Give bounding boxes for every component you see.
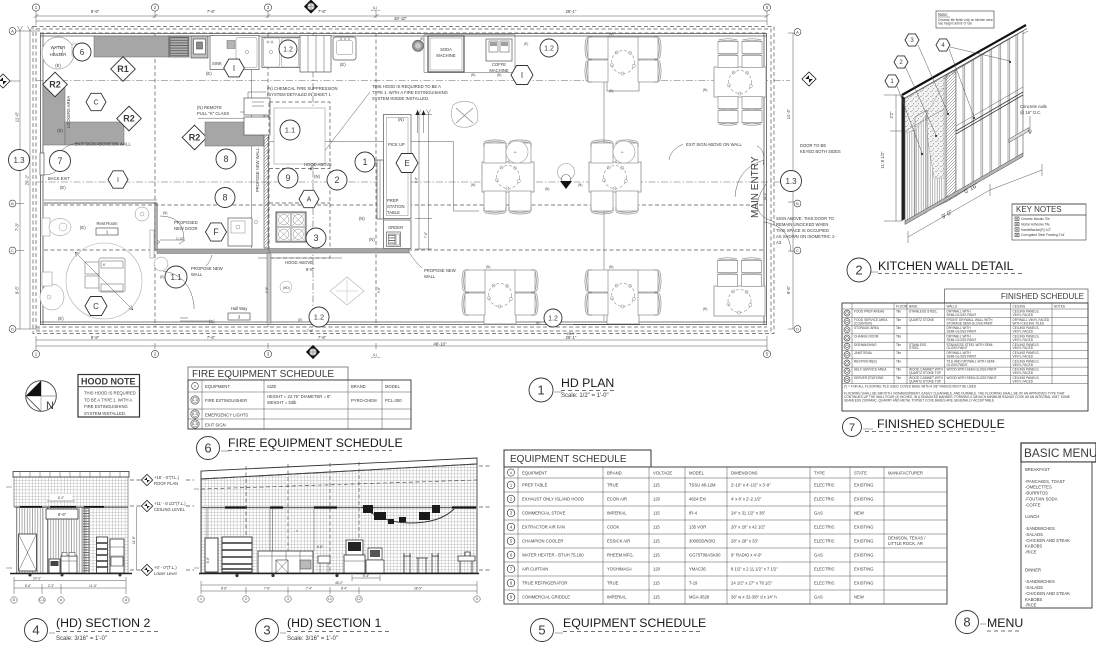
svg-text:WALLS: WALLS [947, 305, 958, 309]
svg-text:Tile: Tile [896, 310, 901, 314]
svg-text:+16' - 0"(T.L.): +16' - 0"(T.L.) [154, 475, 180, 480]
svg-text:3000DD/N3/O: 3000DD/N3/O [689, 539, 716, 544]
svg-text:IMPERIAL: IMPERIAL [607, 511, 627, 516]
svg-text:28'-1": 28'-1" [567, 332, 575, 336]
svg-text:RHEEM MFG.: RHEEM MFG. [607, 553, 634, 558]
svg-text:D: D [796, 326, 799, 331]
svg-text:JANITORIAL: JANITORIAL [854, 351, 873, 355]
svg-text:GAS: GAS [814, 595, 823, 600]
svg-text:2'-3": 2'-3" [48, 584, 54, 588]
svg-text:AS SHOWN ON ISOMETRIC 1-: AS SHOWN ON ISOMETRIC 1- [776, 234, 836, 239]
svg-text:Scale: 1/2" = 1'-0": Scale: 1/2" = 1'-0" [561, 393, 609, 399]
svg-text:EXHAUST ONLY ISLAND HOOD: EXHAUST ONLY ISLAND HOOD [522, 497, 584, 502]
svg-text:24" x 31 1/2" x 36": 24" x 31 1/2" x 36" [731, 511, 766, 516]
svg-text:4: 4 [32, 623, 39, 638]
svg-text:CEILING: CEILING [1013, 305, 1026, 309]
svg-text:120: 120 [653, 497, 661, 502]
svg-text:PROPOSED: PROPOSED [174, 220, 198, 225]
svg-text:ELECTRIC: ELECTRIC [814, 483, 835, 488]
svg-text:(N): (N) [703, 88, 707, 92]
svg-text:26'-2": 26'-2" [25, 174, 30, 185]
svg-text:(HD) SECTION 2: (HD) SECTION 2 [56, 616, 150, 630]
svg-text:20" x 20" x 42 1/2": 20" x 20" x 42 1/2" [731, 525, 766, 530]
svg-text:SEMI-GLOSS PAINT: SEMI-GLOSS PAINT [947, 338, 977, 342]
svg-text:NEW DOOR: NEW DOOR [174, 226, 198, 231]
svg-text:A: A [307, 197, 312, 204]
svg-text:GG75T06ASK00: GG75T06ASK00 [689, 553, 721, 558]
svg-text:WATER HEATER - BTUH 75,100: WATER HEATER - BTUH 75,100 [522, 553, 584, 558]
svg-text:PCL-300: PCL-300 [385, 398, 402, 403]
svg-text:WITH CEILING TILES: WITH CEILING TILES [1013, 321, 1044, 325]
svg-text:7'-6": 7'-6" [318, 335, 327, 340]
svg-text:SODA: SODA [440, 47, 452, 52]
svg-text:9'-6": 9'-6" [415, 177, 419, 183]
svg-text:MGA-3628: MGA-3628 [689, 595, 710, 600]
svg-text:PREP TABLE: PREP TABLE [522, 483, 548, 488]
svg-text:8 1/2" x 2 11 1/2" x 7 1/2": 8 1/2" x 2 11 1/2" x 7 1/2" [731, 567, 778, 572]
svg-text:4' x 8' x 2'-2 1/2": 4' x 8' x 2'-2 1/2" [731, 497, 762, 502]
svg-text:TSSU 48-12M: TSSU 48-12M [689, 483, 716, 488]
svg-text:6': 6' [103, 263, 106, 267]
svg-text:BREAKFAST: BREAKFAST [1025, 467, 1050, 472]
svg-text:L1: L1 [328, 597, 332, 601]
svg-text:9'-6": 9'-6" [786, 285, 791, 294]
svg-text:SIZE: SIZE [267, 384, 277, 389]
svg-text:120: 120 [653, 567, 661, 572]
svg-text:EQUIPMENT SCHEDULE: EQUIPMENT SCHEDULE [510, 454, 627, 465]
svg-text:Ceramic Mosaic Tile: Ceramic Mosaic Tile [1021, 217, 1050, 221]
svg-text:FIRE EQUIPMENT SCHEDULE: FIRE EQUIPMENT SCHEDULE [192, 369, 334, 380]
svg-text:(N): (N) [609, 89, 613, 93]
svg-text:1: 1 [200, 597, 202, 601]
svg-text:R2: R2 [49, 80, 61, 90]
svg-text:SERVER STATIONS: SERVER STATIONS [854, 376, 883, 380]
svg-text:VINYL FACED: VINYL FACED [1013, 338, 1034, 342]
svg-text:-SANDWICHES: -SANDWICHES [1025, 526, 1055, 531]
svg-text:-RICE: -RICE [1025, 603, 1037, 608]
svg-text:5: 5 [538, 623, 545, 638]
svg-text:SIGN ABOVE: THIS DOOR TO: SIGN ABOVE: THIS DOOR TO [776, 216, 835, 221]
svg-text:(N): (N) [703, 307, 707, 311]
svg-text:SEMI-GLOSS PAINT: SEMI-GLOSS PAINT [947, 355, 977, 359]
svg-text:(N): (N) [369, 237, 375, 242]
svg-text:SELF-SERVICE AREA: SELF-SERVICE AREA [854, 368, 887, 372]
svg-text:2'-10": 2'-10" [176, 237, 184, 241]
svg-text:(E): (E) [206, 71, 212, 76]
svg-text:SEMI-GLOSS PAINT: SEMI-GLOSS PAINT [947, 330, 977, 334]
svg-text:KABOBS: KABOBS [1025, 544, 1042, 549]
svg-text:DENISON, TEXAS /: DENISON, TEXAS / [888, 535, 926, 540]
svg-text:A3: A3 [776, 240, 782, 245]
svg-text:7: 7 [57, 156, 62, 166]
svg-text:9" RADIO x 4'-9": 9" RADIO x 4'-9" [731, 553, 763, 558]
svg-text:1.3: 1.3 [193, 422, 198, 426]
svg-text:8'-8": 8'-8" [91, 335, 100, 340]
svg-text:PREP: PREP [387, 198, 399, 203]
svg-text:COMMERCIAL GRIDDLE: COMMERCIAL GRIDDLE [522, 595, 570, 600]
svg-text:MODEL: MODEL [689, 471, 705, 476]
svg-text:PULL "K" CLASS: PULL "K" CLASS [197, 111, 229, 116]
svg-text:VINYL FACED: VINYL FACED [1013, 355, 1034, 359]
svg-text:Hall Way: Hall Way [231, 306, 249, 311]
svg-text:BASIC MENU: BASIC MENU [1024, 446, 1096, 460]
svg-text:1.2: 1.2 [314, 313, 324, 322]
svg-text:TABLE: TABLE [387, 210, 400, 215]
svg-text:SYSTEM INSIDE INSTALLED.: SYSTEM INSIDE INSTALLED. [372, 96, 429, 101]
svg-text:HOOD ABOVE: HOOD ABOVE [304, 162, 332, 167]
svg-text:7'-6": 7'-6" [424, 232, 428, 238]
svg-text:(N): (N) [545, 187, 549, 191]
svg-text:11'-4": 11'-4" [786, 108, 791, 119]
svg-text:7'-6": 7'-6" [207, 335, 216, 340]
svg-text:KEYED BOTH SIDES: KEYED BOTH SIDES [800, 149, 841, 154]
svg-text:(N): (N) [471, 183, 475, 187]
svg-text:LOCKERS AREA: LOCKERS AREA [66, 96, 71, 129]
svg-text:Scale: 3/16" = 1'-0": Scale: 3/16" = 1'-0" [56, 636, 107, 642]
svg-text:8'-8": 8'-8" [317, 545, 323, 549]
svg-text:STORAGE AREA: STORAGE AREA [854, 326, 880, 330]
svg-text:B: B [11, 201, 14, 206]
svg-text:(N): (N) [497, 73, 501, 77]
svg-text:6'-6": 6'-6" [206, 557, 210, 563]
svg-text:FINISHED SCHEDULE: FINISHED SCHEDULE [1001, 292, 1084, 301]
svg-text:VINYL FACED: VINYL FACED [1013, 313, 1034, 317]
svg-text:I: I [233, 64, 235, 73]
svg-text:T-19: T-19 [689, 581, 698, 586]
svg-text:-CHICKEN AND STEAK: -CHICKEN AND STEAK [1025, 538, 1070, 543]
svg-text:Tile: Tile [896, 368, 901, 372]
svg-text:7'-3": 7'-3" [15, 222, 20, 231]
svg-text:11' 8 1/2": 11' 8 1/2" [880, 151, 885, 169]
svg-text:ECON AIR: ECON AIR [607, 497, 627, 502]
svg-text:RESTROOM(S): RESTROOM(S) [854, 359, 877, 363]
svg-text:1.2: 1.2 [193, 412, 198, 416]
svg-text:KABOBS: KABOBS [1025, 597, 1042, 602]
svg-text:WOOD WITH SEMI-GLOSS PAINT: WOOD WITH SEMI-GLOSS PAINT [947, 368, 997, 372]
svg-text:(N): (N) [609, 32, 613, 36]
svg-text:8'-8": 8'-8" [91, 9, 100, 14]
svg-text:Concrete nails: Concrete nails [1020, 104, 1047, 109]
svg-text:COOK: COOK [607, 525, 620, 530]
svg-text:(N): (N) [314, 174, 320, 179]
svg-text:NEW: NEW [854, 511, 864, 516]
svg-text:11'-6": 11'-6" [89, 584, 97, 588]
svg-text:ELECTRIC: ELECTRIC [814, 567, 835, 572]
svg-text:EMERGENCY LIGHTS: EMERGENCY LIGHTS [205, 413, 248, 418]
svg-text:BASE: BASE [909, 305, 918, 309]
svg-text:Lower Level: Lower Level [154, 571, 177, 576]
svg-text:(E): (E) [298, 318, 302, 322]
svg-text:3: 3 [263, 623, 270, 638]
svg-text:DINNER: DINNER [1025, 567, 1041, 572]
svg-text:11'-6": 11'-6" [15, 111, 20, 122]
svg-text:SYSTEM INSTALLED.: SYSTEM INSTALLED. [84, 411, 126, 416]
svg-text:7'-6": 7'-6" [318, 9, 327, 14]
svg-text:Tile: Tile [896, 326, 901, 330]
svg-text:(SYSTEM DETAILED IN SHEET 1: (SYSTEM DETAILED IN SHEET 1 [267, 92, 332, 97]
svg-text:YMAC36: YMAC36 [689, 567, 706, 572]
svg-text:FIRE EQUIPMENT SCHEDULE: FIRE EQUIPMENT SCHEDULE [228, 436, 403, 450]
svg-text:FIRE EXTINGUISHER: FIRE EXTINGUISHER [205, 398, 247, 403]
svg-text:24 1/2" x 27" x 78 1/2": 24 1/2" x 27" x 78 1/2" [731, 581, 773, 586]
svg-text:EXTRACTOR AIR FAN: EXTRACTOR AIR FAN [522, 525, 565, 530]
svg-text:9'-5": 9'-5" [15, 285, 20, 294]
svg-text:-SALADS: -SALADS [1025, 585, 1043, 590]
svg-text:(N): (N) [471, 73, 475, 77]
svg-text:115: 115 [653, 553, 660, 558]
svg-text:8: 8 [963, 615, 970, 630]
svg-text:PROPOSE NEW: PROPOSE NEW [424, 268, 456, 273]
svg-text:PROPOSE NEW: PROPOSE NEW [191, 266, 223, 271]
svg-text:EQUIPMENT: EQUIPMENT [205, 384, 230, 389]
svg-text:IMPERIAL: IMPERIAL [607, 595, 627, 600]
svg-text:(N) REMOTE: (N) REMOTE [197, 105, 222, 110]
svg-text:ESSICK AIR: ESSICK AIR [607, 539, 630, 544]
svg-text:48'-0": 48'-0" [335, 581, 343, 585]
svg-text:CHANGE ROOM: CHANGE ROOM [854, 335, 879, 339]
svg-text:115: 115 [653, 539, 660, 544]
svg-text:6'-2": 6'-2" [58, 496, 64, 500]
svg-text:B: B [796, 201, 799, 206]
svg-text:EXISTING: EXISTING [854, 483, 874, 488]
svg-text:1: 1 [537, 383, 544, 398]
svg-text:#: # [194, 385, 196, 389]
svg-text:9: 9 [285, 173, 290, 183]
svg-text:-SALADS: -SALADS [1025, 532, 1043, 537]
svg-text:HOOD ABOVE: HOOD ABOVE [285, 260, 313, 265]
svg-text:BRAND: BRAND [351, 384, 366, 389]
svg-text:6: 6 [80, 48, 85, 57]
svg-text:1.3: 1.3 [785, 177, 797, 186]
svg-text:YOSHIMASA: YOSHIMASA [607, 567, 632, 572]
svg-text:36" w x 32-3/8" d x 14" h: 36" w x 32-3/8" d x 14" h [731, 595, 777, 600]
svg-text:HardieBacker(R) 1/2": HardieBacker(R) 1/2" [1021, 228, 1051, 232]
svg-text:2: 2 [855, 263, 862, 278]
svg-text:I: I [117, 177, 119, 184]
svg-text:8: 8 [222, 193, 227, 203]
svg-text:MANUFACTURER: MANUFACTURER [888, 471, 923, 476]
svg-text:CHAMPION COOLER: CHAMPION COOLER [522, 539, 563, 544]
svg-text:TRUE REFRIGERATOR: TRUE REFRIGERATOR [522, 581, 567, 586]
svg-text:1.2: 1.2 [548, 316, 558, 323]
svg-text:7'-4": 7'-4" [306, 587, 312, 591]
svg-text:8'-6": 8'-6" [25, 584, 31, 588]
svg-text:R1: R1 [117, 64, 129, 74]
svg-text:11'-6": 11'-6" [132, 536, 136, 544]
svg-text:TYPE 1. WITH A FIRE EXTINGUISH: TYPE 1. WITH A FIRE EXTINGUISHING [372, 90, 448, 95]
svg-text:-CHICKEN AND STEAK: -CHICKEN AND STEAK [1025, 591, 1070, 596]
svg-text:Tile: Tile [896, 318, 901, 322]
svg-text:8: 8 [223, 154, 228, 164]
svg-text:115: 115 [653, 511, 660, 516]
svg-text:BRAND: BRAND [607, 471, 622, 476]
svg-text:GLOSS PAINT: GLOSS PAINT [947, 346, 968, 350]
svg-text:(L): (L) [373, 6, 377, 10]
svg-text:2'2": 2'2" [889, 111, 894, 118]
svg-text:DOOR TO BE: DOOR TO BE [800, 143, 826, 148]
svg-text:CEILING LEVEL: CEILING LEVEL [154, 507, 186, 512]
svg-text:-FOUTAIN SODA: -FOUTAIN SODA [1025, 497, 1058, 502]
svg-text:(N): (N) [359, 216, 365, 221]
svg-text:Rest Room: Rest Room [97, 221, 118, 226]
svg-text:8'-4": 8'-4" [341, 587, 347, 591]
svg-text:(E): (E) [209, 319, 215, 324]
svg-text:MACHINE: MACHINE [436, 53, 456, 58]
svg-text:Tile: Tile [896, 359, 901, 363]
svg-text:WEIGHT = 53lb: WEIGHT = 53lb [267, 400, 297, 405]
svg-text:3: 3 [287, 597, 289, 601]
svg-text:(E): (E) [55, 63, 61, 68]
svg-text:GAS: GAS [814, 553, 823, 558]
svg-text:(COUNTER): (COUNTER) [854, 321, 872, 325]
svg-text:STAINLESS STEEL: STAINLESS STEEL [909, 310, 938, 314]
svg-text:-SANDWICHES: -SANDWICHES [1025, 579, 1055, 584]
svg-text:EXIT SIGN: EXIT SIGN [205, 423, 226, 428]
svg-text:FINISHED SCHEDULE: FINISHED SCHEDULE [877, 417, 1005, 431]
svg-text:7'-6": 7'-6" [207, 9, 216, 14]
svg-text:EXISTING: EXISTING [854, 539, 874, 544]
svg-text:ELECTRIC: ELECTRIC [814, 525, 835, 530]
svg-text:4824 EXI: 4824 EXI [689, 497, 706, 502]
svg-text:28" x 28" x 33": 28" x 28" x 33" [731, 539, 759, 544]
svg-text:C.1: C.1 [39, 598, 44, 602]
svg-text:NEW: NEW [854, 595, 864, 600]
svg-text:ELECTRIC: ELECTRIC [814, 497, 835, 502]
svg-text:7: 7 [849, 422, 855, 434]
svg-text:C: C [796, 248, 799, 253]
svg-text:WOOD WITH SEMI-GLOSS PAINT: WOOD WITH SEMI-GLOSS PAINT [947, 376, 997, 380]
svg-text:THIS HOOD IS REQUIRED: THIS HOOD IS REQUIRED [84, 391, 136, 396]
svg-text:N: N [46, 400, 54, 412]
svg-text:C: C [11, 248, 14, 253]
svg-text:1.2: 1.2 [544, 46, 554, 53]
svg-text:PICK UP: PICK UP [388, 142, 405, 147]
svg-text:BACK EXIT: BACK EXIT [48, 176, 70, 181]
svg-text:FLOOR: FLOOR [896, 305, 908, 309]
svg-text:TO BE A TYPE 1. WITH A: TO BE A TYPE 1. WITH A [84, 397, 132, 402]
svg-text:Tile: Tile [896, 343, 901, 347]
svg-text:(E): (E) [420, 37, 424, 41]
svg-text:6: 6 [204, 441, 211, 456]
svg-text:-OMELETTES: -OMELETTES [1025, 485, 1052, 490]
svg-text:A: A [796, 29, 799, 34]
svg-text:(E): (E) [80, 225, 86, 230]
svg-text:28'-9": 28'-9" [414, 587, 422, 591]
svg-text:11'-2": 11'-2" [763, 192, 767, 200]
svg-text:VINYL FACED: VINYL FACED [1013, 346, 1034, 350]
svg-text:HOOD NOTE: HOOD NOTE [81, 377, 136, 387]
svg-text:KEY NOTES: KEY NOTES [1016, 205, 1062, 214]
svg-text:(*) = FOR ALL FLOORING TILE US: (*) = FOR ALL FLOORING TILE USED COVED B… [844, 385, 977, 389]
svg-text:FOOD PREP AREAS: FOOD PREP AREAS [854, 310, 884, 314]
svg-text:(N) CHEMICAL FIRE SUPPRESSION: (N) CHEMICAL FIRE SUPPRESSION [267, 86, 338, 91]
svg-text:(E): (E) [340, 62, 346, 67]
svg-text:(E): (E) [58, 316, 64, 321]
svg-text:QUARTZ STONE TOP: QUARTZ STONE TOP [909, 371, 941, 375]
svg-text:VINYL FACED: VINYL FACED [1013, 379, 1034, 383]
svg-text:2: 2 [334, 175, 339, 185]
svg-text:D: D [11, 326, 14, 331]
svg-text:1.3: 1.3 [13, 156, 25, 165]
svg-text:HEATER: HEATER [50, 52, 67, 57]
svg-text:#: # [510, 471, 512, 475]
svg-text:ROOF PLAN: ROOF PLAN [154, 481, 178, 486]
svg-text:TRUE: TRUE [607, 581, 619, 586]
svg-text:VINYL FACED: VINYL FACED [1013, 330, 1034, 334]
svg-text:20'-3": 20'-3" [33, 577, 41, 581]
svg-text:E: E [404, 159, 409, 168]
svg-text:EXISTING: EXISTING [854, 553, 874, 558]
svg-text:(N): (N) [609, 265, 613, 269]
svg-text:-BURRITOS: -BURRITOS [1025, 491, 1048, 496]
svg-text:QUARTZ STONE: QUARTZ STONE [909, 318, 934, 322]
svg-text:QUARTZ STONE TOP: QUARTZ STONE TOP [909, 379, 941, 383]
svg-text:7'-6": 7'-6" [307, 329, 313, 333]
svg-text:VOLTAGE: VOLTAGE [653, 471, 672, 476]
svg-text:(E): (E) [160, 275, 164, 279]
svg-text:EXISTING: EXISTING [854, 567, 874, 572]
svg-text:IR-4: IR-4 [689, 511, 698, 516]
svg-text:(N): (N) [398, 117, 404, 122]
svg-text:1.1: 1.1 [170, 273, 182, 282]
svg-text:TRUE: TRUE [607, 483, 619, 488]
svg-text:EQUIPMENT: EQUIPMENT [522, 471, 547, 476]
svg-text:-PANCAKES, TOAST: -PANCAKES, TOAST [1025, 479, 1065, 484]
svg-text:(E): (E) [524, 42, 528, 46]
svg-text:8'-6": 8'-6" [221, 587, 227, 591]
svg-text:8'-6": 8'-6" [58, 512, 67, 517]
svg-text:HEIGHT = 22.75" DIAMETER = 8": HEIGHT = 22.75" DIAMETER = 8" [267, 394, 331, 399]
svg-text:THIS SPACE IS OCCUPIED: THIS SPACE IS OCCUPIED [776, 228, 829, 233]
svg-text:(E): (E) [536, 321, 540, 325]
svg-text:1.1: 1.1 [193, 398, 198, 402]
svg-text:115: 115 [653, 581, 660, 586]
svg-text:EXISTING: EXISTING [854, 497, 874, 502]
svg-text:HD PLAN: HD PLAN [561, 376, 614, 390]
svg-text:A: A [11, 28, 14, 33]
svg-text:9'-6": 9'-6" [377, 287, 381, 293]
svg-text:DISHWASHING: DISHWASHING [854, 343, 877, 347]
svg-text:115: 115 [653, 483, 660, 488]
svg-text:8'-8": 8'-8" [306, 267, 315, 272]
svg-text:(L): (L) [373, 353, 377, 357]
svg-text:-RICE: -RICE [1025, 550, 1037, 555]
svg-text:@ 16" O.C.: @ 16" O.C. [1020, 110, 1041, 115]
svg-text:L2: L2 [357, 597, 361, 601]
svg-text:ELECTRIC: ELECTRIC [814, 539, 835, 544]
svg-text:3: 3 [313, 233, 318, 243]
svg-text:EQUIPMENT SCHEDULE: EQUIPMENT SCHEDULE [563, 616, 706, 630]
svg-text:Note:: Note: [938, 12, 948, 17]
svg-text:WALL: WALL [424, 274, 436, 279]
svg-text:Tile: Tile [896, 335, 901, 339]
svg-text:ELECTRIC: ELECTRIC [814, 581, 835, 586]
svg-text:NOTES: NOTES [1054, 305, 1065, 309]
svg-text:SEMI-GLOSS PAINT: SEMI-GLOSS PAINT [947, 313, 977, 317]
svg-text:MENU: MENU [987, 616, 1023, 630]
svg-text:FIRE EXTINGUISHING: FIRE EXTINGUISHING [84, 404, 128, 409]
svg-text:1: 1 [362, 157, 367, 167]
svg-text:+0' - 0"(T.L.): +0' - 0"(T.L.) [154, 565, 177, 570]
svg-text:SEAMLESS CERAMIC, QUARRY AND M: SEAMLESS CERAMIC, QUARRY AND METAL TOPSE… [844, 399, 994, 403]
svg-text:STATE: STATE [854, 471, 867, 476]
svg-text:(HD) SECTION 1: (HD) SECTION 1 [287, 616, 381, 630]
svg-text:C: C [93, 302, 99, 311]
svg-text:WALL: WALL [191, 272, 203, 277]
svg-text:Scale: 3/16" = 1'-0": Scale: 3/16" = 1'-0" [287, 636, 338, 642]
svg-text:(N): (N) [163, 211, 167, 215]
svg-text:DIMENSIONS: DIMENSIONS [731, 471, 758, 476]
